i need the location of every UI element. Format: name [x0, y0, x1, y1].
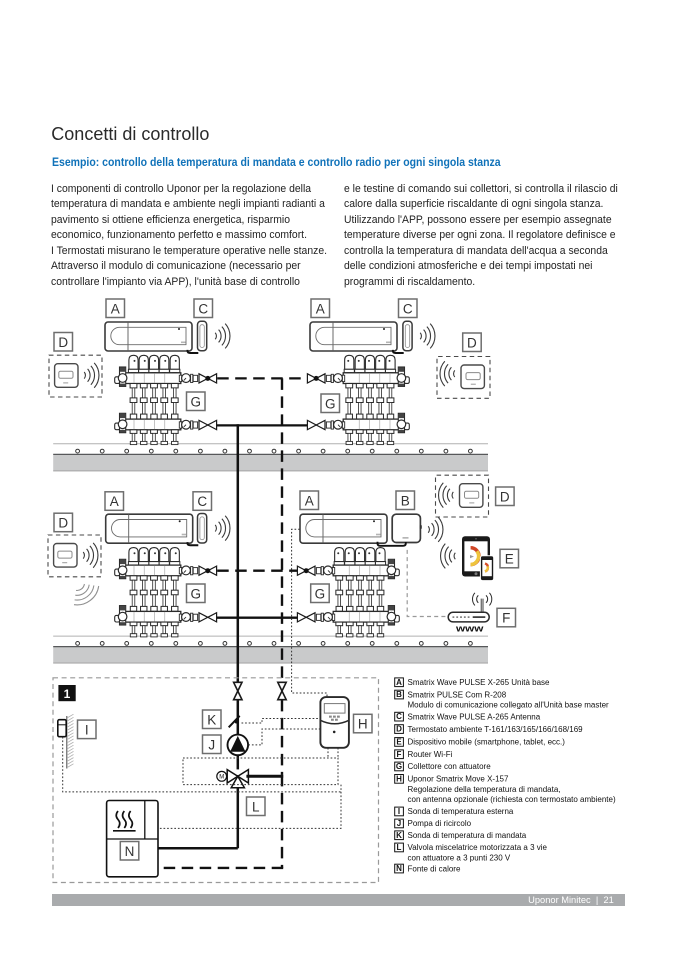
svg-text:Uponor Smatrix Move X-157: Uponor Smatrix Move X-157	[408, 775, 509, 784]
svg-text:Regolazione della temperatura: Regolazione della temperatura di mandata…	[408, 785, 561, 794]
svg-text:1: 1	[64, 687, 71, 701]
svg-text:L: L	[252, 799, 260, 814]
svg-text:K: K	[396, 831, 402, 840]
svg-text:B: B	[396, 690, 402, 699]
svg-text:A: A	[396, 678, 402, 687]
svg-text:Valvola miscelatrice motorizza: Valvola miscelatrice motorizzata a 3 vie	[408, 843, 548, 852]
svg-text:E: E	[396, 738, 402, 747]
svg-text:Termostato ambiente T-161/163/: Termostato ambiente T-161/163/165/166/16…	[408, 725, 584, 734]
svg-text:Collettore con attuatore: Collettore con attuatore	[408, 762, 492, 771]
svg-text:C: C	[403, 301, 413, 316]
svg-text:Router Wi-Fi: Router Wi-Fi	[408, 750, 453, 759]
svg-text:N: N	[125, 844, 135, 859]
svg-text:Fonte di calore: Fonte di calore	[408, 864, 461, 873]
svg-text:Modulo di comunicazione colleg: Modulo di comunicazione collegato all'Un…	[408, 701, 610, 710]
svg-text:M: M	[219, 775, 224, 781]
svg-text:D: D	[500, 489, 510, 504]
svg-text:Smatrix Wave PULSE A-265 Anten: Smatrix Wave PULSE A-265 Antenna	[408, 712, 541, 721]
svg-text:Sonda di temperatura di mandat: Sonda di temperatura di mandata	[408, 831, 527, 840]
svg-text:E: E	[505, 552, 514, 567]
svg-text:J: J	[208, 737, 215, 752]
svg-text:G: G	[190, 394, 201, 409]
svg-text:G: G	[396, 762, 402, 771]
svg-text:I: I	[85, 723, 89, 738]
svg-text:A: A	[110, 494, 119, 509]
svg-text:Smatrix Wave PULSE X-265 Unità: Smatrix Wave PULSE X-265 Unità base	[408, 678, 551, 687]
svg-text:C: C	[197, 494, 207, 509]
svg-text:J: J	[397, 819, 401, 828]
svg-text:I: I	[398, 807, 400, 816]
svg-text:F: F	[397, 750, 402, 759]
svg-text:Dispositivo mobile (smartphone: Dispositivo mobile (smartphone, tablet, …	[408, 738, 566, 747]
svg-text:Sonda di temperatura esterna: Sonda di temperatura esterna	[408, 807, 514, 816]
svg-text:G: G	[315, 586, 326, 601]
svg-text:A: A	[305, 493, 314, 508]
svg-text:L: L	[397, 843, 402, 852]
svg-text:D: D	[58, 516, 68, 531]
svg-text:Pompa di ricircolo: Pompa di ricircolo	[408, 819, 472, 828]
svg-text:D: D	[58, 335, 68, 350]
svg-text:H: H	[358, 717, 368, 732]
svg-text:D: D	[467, 335, 477, 350]
svg-text:F: F	[502, 611, 510, 626]
svg-text:G: G	[190, 586, 201, 601]
svg-text:www: www	[455, 624, 485, 634]
svg-text:C: C	[396, 712, 402, 721]
svg-text:H: H	[396, 774, 402, 783]
svg-text:Smatrix PULSE Com R-208: Smatrix PULSE Com R-208	[408, 690, 507, 699]
svg-text:K: K	[207, 712, 216, 727]
svg-text:G: G	[325, 396, 336, 411]
svg-text:N: N	[396, 864, 402, 873]
svg-text:A: A	[111, 301, 120, 316]
svg-text:con attuatore a 3 punti 230 V: con attuatore a 3 punti 230 V	[408, 854, 511, 863]
svg-text:C: C	[198, 301, 208, 316]
svg-text:B: B	[401, 493, 410, 508]
svg-text:A: A	[316, 301, 325, 316]
svg-text:D: D	[396, 725, 402, 734]
svg-text:con antenna opzionale (richies: con antenna opzionale (richiesta con ter…	[408, 795, 616, 804]
